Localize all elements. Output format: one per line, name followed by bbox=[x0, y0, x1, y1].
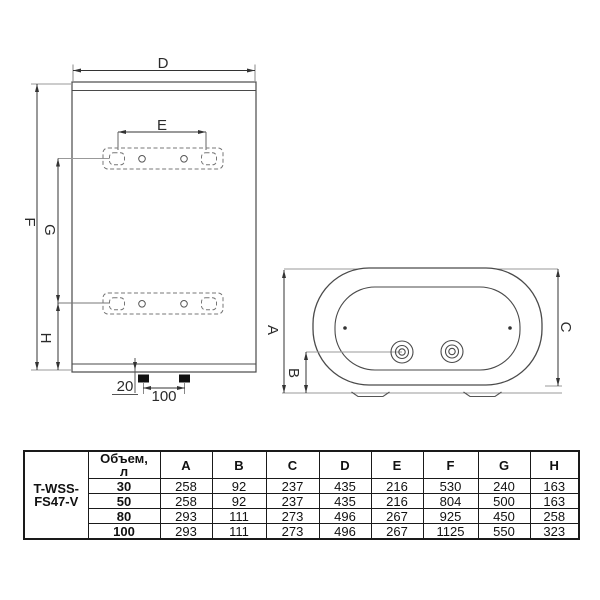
value-cell: 496 bbox=[319, 524, 371, 540]
value-cell: 237 bbox=[266, 494, 319, 509]
model-cell: T-WSS- FS47-V bbox=[24, 451, 88, 539]
col-header-c: C bbox=[266, 451, 319, 479]
col-header-b: B bbox=[212, 451, 266, 479]
volume-cell: 30 bbox=[88, 479, 160, 494]
dim-label-100: 100 bbox=[151, 388, 176, 405]
value-cell: 925 bbox=[423, 509, 478, 524]
col-header-d: D bbox=[319, 451, 371, 479]
volume-cell: 80 bbox=[88, 509, 160, 524]
value-cell: 550 bbox=[478, 524, 530, 540]
col-header-e: E bbox=[371, 451, 423, 479]
dim-label-20: 20 bbox=[117, 378, 134, 395]
front-view: D E F bbox=[21, 55, 256, 405]
value-cell: 92 bbox=[212, 479, 266, 494]
tank-oval-outline bbox=[313, 268, 542, 385]
dimension-a: A bbox=[264, 270, 286, 393]
table-header-row: T-WSS- FS47-V Объем, л A B C D E F G H bbox=[24, 451, 579, 479]
value-cell: 237 bbox=[266, 479, 319, 494]
value-cell: 163 bbox=[530, 479, 579, 494]
bottom-view: A B C bbox=[264, 268, 574, 397]
col-header-f: F bbox=[423, 451, 478, 479]
dim-label-g: G bbox=[41, 224, 58, 236]
value-cell: 267 bbox=[371, 524, 423, 540]
col-header-g: G bbox=[478, 451, 530, 479]
value-cell: 273 bbox=[266, 509, 319, 524]
dim-label-f: F bbox=[21, 217, 38, 226]
table-row-30: 30 258 92 237 435 216 530 240 163 bbox=[24, 479, 579, 494]
model-line-2: FS47-V bbox=[25, 495, 88, 508]
spec-table-section: T-WSS- FS47-V Объем, л A B C D E F G H bbox=[23, 450, 580, 540]
volume-cell: 100 bbox=[88, 524, 160, 540]
value-cell: 163 bbox=[530, 494, 579, 509]
technical-drawing: D E F bbox=[0, 0, 600, 448]
value-cell: 293 bbox=[160, 524, 212, 540]
value-cell: 450 bbox=[478, 509, 530, 524]
value-cell: 500 bbox=[478, 494, 530, 509]
value-cell: 273 bbox=[266, 524, 319, 540]
table-row-100: 100 293 111 273 496 267 1125 550 323 bbox=[24, 524, 579, 540]
value-cell: 496 bbox=[319, 509, 371, 524]
spec-table: T-WSS- FS47-V Объем, л A B C D E F G H bbox=[23, 450, 580, 540]
table-row-50: 50 258 92 237 435 216 804 500 163 bbox=[24, 494, 579, 509]
value-cell: 267 bbox=[371, 509, 423, 524]
value-cell: 240 bbox=[478, 479, 530, 494]
weld-dot-right bbox=[508, 326, 512, 330]
col-header-h: H bbox=[530, 451, 579, 479]
value-cell: 804 bbox=[423, 494, 478, 509]
dim-label-d: D bbox=[158, 55, 169, 72]
value-cell: 111 bbox=[212, 524, 266, 540]
dim-label-h: H bbox=[37, 333, 54, 344]
value-cell: 435 bbox=[319, 494, 371, 509]
weld-dot-left bbox=[343, 326, 347, 330]
value-cell: 293 bbox=[160, 509, 212, 524]
value-cell: 258 bbox=[160, 494, 212, 509]
product-drawing-page: D E F bbox=[0, 0, 600, 600]
value-cell: 111 bbox=[212, 509, 266, 524]
col-header-a: A bbox=[160, 451, 212, 479]
dim-label-e: E bbox=[157, 117, 167, 134]
dimension-c: C bbox=[556, 269, 574, 386]
value-cell: 216 bbox=[371, 494, 423, 509]
value-cell: 530 bbox=[423, 479, 478, 494]
value-cell: 258 bbox=[160, 479, 212, 494]
value-cell: 216 bbox=[371, 479, 423, 494]
value-cell: 435 bbox=[319, 479, 371, 494]
value-cell: 323 bbox=[530, 524, 579, 540]
dim-label-b: B bbox=[285, 368, 302, 378]
dimension-d: D bbox=[73, 55, 255, 81]
table-row-80: 80 293 111 273 496 267 925 450 258 bbox=[24, 509, 579, 524]
dim-label-c: C bbox=[557, 322, 574, 333]
volume-cell: 50 bbox=[88, 494, 160, 509]
value-cell: 258 bbox=[530, 509, 579, 524]
volume-header-cell: Объем, л bbox=[88, 451, 160, 479]
value-cell: 92 bbox=[212, 494, 266, 509]
dim-label-a: A bbox=[264, 325, 281, 335]
dimension-b: B bbox=[285, 352, 308, 393]
dimension-pipe-spacing: 100 bbox=[143, 386, 185, 405]
value-cell: 1125 bbox=[423, 524, 478, 540]
